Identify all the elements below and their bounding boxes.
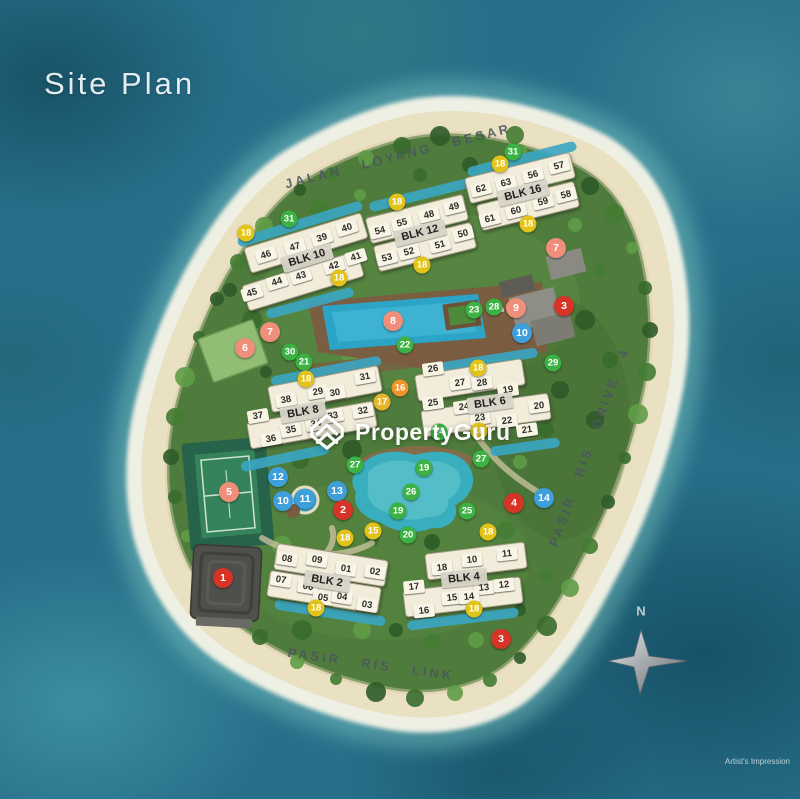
unit-chip: 17	[403, 579, 425, 594]
site-marker: 18	[298, 371, 315, 388]
unit-chip: 44	[265, 273, 289, 292]
site-marker: 18	[389, 194, 406, 211]
unit-chip: 02	[364, 564, 387, 580]
labels-overlay: 4647394041424344455455484953525150626356…	[0, 0, 800, 799]
unit-chip: 27	[449, 375, 472, 391]
unit-chip: 08	[276, 551, 299, 567]
site-marker: 4	[504, 493, 524, 513]
site-marker: 1	[213, 568, 233, 588]
site-plan-image: { "title": "Site Plan", "watermark": { "…	[0, 0, 800, 799]
unit-chip: 41	[344, 248, 368, 267]
site-marker: 18	[480, 524, 497, 541]
unit-chip: 46	[254, 246, 278, 265]
site-marker: 17	[374, 394, 391, 411]
site-marker: 18	[520, 216, 537, 233]
site-marker: 3	[554, 296, 574, 316]
site-marker: 7	[260, 322, 280, 342]
site-marker: 28	[486, 299, 503, 316]
site-marker: 20	[400, 527, 417, 544]
unit-chip: 54	[368, 222, 392, 240]
unit-chip: 31	[354, 369, 377, 385]
site-marker: 18	[331, 270, 348, 287]
page-title: Site Plan	[44, 66, 195, 102]
unit-chip: 21	[516, 422, 539, 438]
watermark: PropertyGuru	[308, 413, 511, 451]
site-marker: 22	[397, 337, 414, 354]
site-marker: 25	[459, 503, 476, 520]
unit-chip: 10	[461, 552, 483, 567]
unit-chip: 25	[422, 395, 445, 411]
unit-chip: 09	[306, 552, 329, 568]
site-marker: 21	[296, 354, 313, 371]
unit-chip: 35	[280, 422, 303, 438]
unit-chip: 51	[428, 236, 452, 254]
unit-chip: 03	[356, 597, 379, 613]
site-marker: 18	[308, 600, 325, 617]
road-label: JALAN LOYANG BESAR	[283, 121, 512, 192]
compass-north-label: N	[636, 604, 645, 619]
watermark-brand-text: PropertyGuru	[355, 419, 511, 446]
unit-chip: 61	[478, 210, 502, 228]
site-marker: 31	[281, 211, 298, 228]
site-marker: 18	[337, 530, 354, 547]
site-marker: 10	[273, 491, 293, 511]
site-marker: 18	[470, 360, 487, 377]
site-marker: 31	[505, 144, 522, 161]
site-marker: 8	[383, 311, 403, 331]
site-marker: 13	[327, 481, 347, 501]
unit-chip: 45	[240, 284, 264, 303]
site-marker: 15	[365, 523, 382, 540]
site-marker: 29	[545, 355, 562, 372]
unit-chip: 20	[528, 398, 551, 414]
road-label: PASIR RIS DRIVE 4	[546, 345, 632, 549]
site-marker: 2	[333, 500, 353, 520]
site-marker: 16	[392, 380, 409, 397]
site-marker: 5	[219, 482, 239, 502]
block-label: BLK 6	[466, 392, 514, 414]
unit-chip: 36	[260, 431, 283, 447]
site-marker: 19	[416, 460, 433, 477]
site-marker: 3	[491, 629, 511, 649]
unit-chip: 53	[375, 249, 399, 267]
unit-chip: 12	[493, 577, 515, 592]
unit-chip: 50	[451, 225, 475, 243]
unit-chip: 40	[335, 219, 359, 238]
site-marker: 7	[546, 238, 566, 258]
unit-chip: 11	[496, 546, 518, 561]
site-marker: 19	[390, 503, 407, 520]
site-marker: 18	[414, 257, 431, 274]
site-marker: 18	[492, 156, 509, 173]
unit-chip: 62	[469, 180, 493, 198]
site-marker: 27	[347, 457, 364, 474]
unit-chip: 28	[471, 375, 494, 391]
site-marker: 18	[238, 225, 255, 242]
site-marker: 12	[268, 467, 288, 487]
unit-chip: 37	[247, 408, 270, 424]
unit-chip: 07	[270, 572, 293, 588]
site-marker: 6	[235, 338, 255, 358]
unit-chip: 26	[422, 361, 445, 377]
site-marker: 27	[473, 451, 490, 468]
unit-chip: 49	[442, 198, 466, 216]
artist-impression-note: Artist's Impression	[690, 757, 790, 766]
site-marker: 23	[466, 302, 483, 319]
unit-chip: 58	[554, 186, 578, 204]
road-label: PASIR RIS LINK	[287, 645, 455, 683]
unit-chip: 16	[413, 603, 435, 618]
site-marker: 26	[403, 484, 420, 501]
propertyguru-logo-icon	[308, 413, 346, 451]
site-marker: 11	[295, 489, 315, 509]
site-marker: 10	[512, 323, 532, 343]
unit-chip: 57	[547, 157, 571, 175]
site-marker: 9	[506, 298, 526, 318]
site-marker: 18	[466, 601, 483, 618]
site-marker: 14	[534, 488, 554, 508]
unit-chip: 30	[324, 385, 347, 401]
